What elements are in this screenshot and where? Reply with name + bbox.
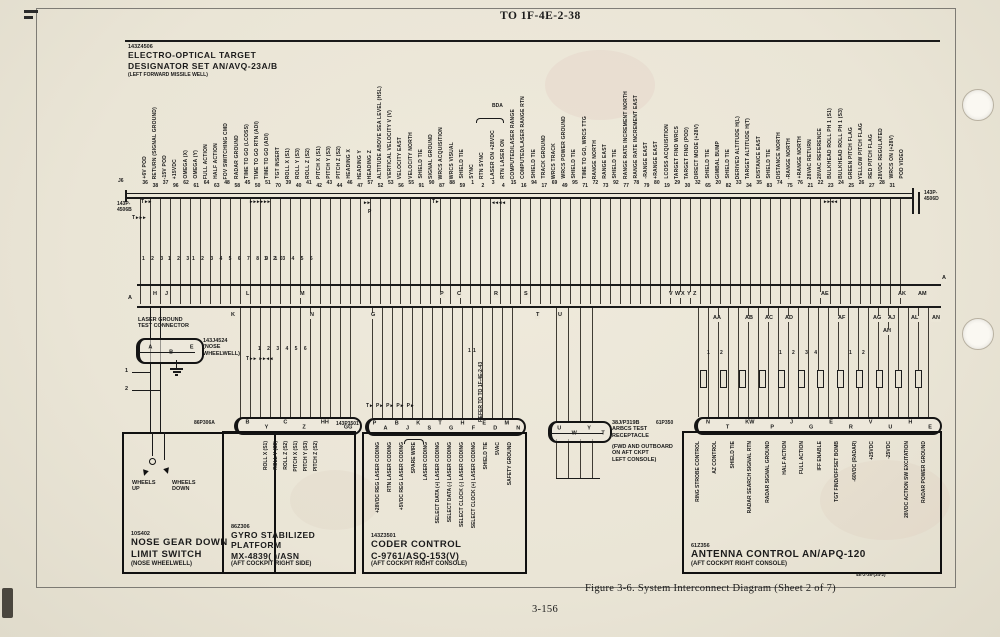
connector-right-end1: [912, 188, 914, 214]
gyro-connector-label: 86P306A: [194, 420, 215, 426]
laser-ground-loc2: WHEELWELL): [203, 351, 240, 357]
pin-signal-label: SYNC: [470, 164, 475, 179]
connector-pin: TARGET FIND (POD)30: [682, 56, 692, 190]
pin-signal-label: WRCS VISUAL: [450, 142, 455, 179]
antenna-signal: -25VDC: [887, 441, 893, 459]
pin-signal-label: TARGET FIND WRCS: [675, 126, 680, 179]
laser-ground-title-l2: TEST CONNECTOR: [138, 323, 189, 329]
pin-signal-label: -15V POD: [163, 155, 168, 179]
bus-letter-below: AC: [764, 316, 774, 322]
pin-number: 71: [582, 184, 588, 193]
gyro-signal: ROLL Z (S2): [284, 441, 290, 470]
antenna-connector-pin: V: [869, 421, 873, 427]
pin-number: 1: [471, 181, 474, 190]
wire-band-arbcs-loop: [556, 439, 604, 478]
pin-number: 90: [429, 181, 435, 190]
page-number: 3-156: [532, 604, 558, 615]
bus-line-upper: [137, 284, 941, 286]
coder-signal: SELECT CLOCK (+) LASER CODING: [472, 442, 478, 528]
bus-letter-below: T: [535, 313, 540, 319]
arbcs-loop-bottom: [556, 478, 600, 479]
pin-number: 25: [849, 184, 855, 193]
pin-number: 22: [818, 181, 824, 190]
connector-pin: RTN SYNC2: [478, 56, 488, 190]
diode-arrow-marks: ◂◂◂◂: [492, 200, 506, 206]
coder-signal: +28VDC REG LASER CODING: [376, 442, 382, 513]
connector-pin: RANGE RATE INCREMENT NORTH77: [621, 56, 631, 190]
inline-component: [915, 370, 922, 388]
pin-signal-label: 28VAC RETURN: [808, 139, 813, 179]
pin-signal-label: 28VAC REFERENCE: [818, 128, 823, 179]
jack-label: J6: [118, 178, 124, 184]
connector-pin: YELLOW PITCH FLAG26: [856, 56, 866, 190]
antenna-connector-label: 61P350: [656, 420, 673, 426]
wire-band-antenna: [698, 306, 934, 417]
diode-arrow-marks: T▸▸▸: [132, 215, 147, 221]
bus-label-a-left: A: [127, 296, 133, 302]
coder-connector-pin: M: [504, 422, 509, 428]
pin-number: 15: [511, 181, 517, 190]
pin-number: 91: [419, 184, 425, 193]
figure-caption: Figure 3-6. System Interconnect Diagram …: [585, 583, 836, 594]
connector-pin: HEADING X46: [345, 56, 355, 190]
pin-signal-label: COMPUTED/LASER RANGE: [511, 109, 516, 179]
pin-signal-label: WRCS ON (+28V): [890, 135, 895, 179]
pin-signal-label: RED PITCH FLAG: [869, 134, 874, 179]
connector-pin: BULKHEAD ROLL PH 1 (S1)23: [826, 56, 836, 190]
pin-signal-label: GIMBAL BUMP: [716, 141, 721, 179]
switch-contact-down: [163, 467, 171, 475]
coder-connector-pin: P: [373, 422, 377, 428]
pin-number: 43: [327, 181, 333, 190]
connector-pin: TRACK GROUND17: [539, 56, 549, 190]
pin-number: 38: [153, 184, 159, 193]
wire-number-1: 1: [125, 368, 128, 374]
pin-number: 65: [705, 184, 711, 193]
pin-signal-label: HEADING Y: [358, 150, 363, 180]
pin-signal-label: LASER ON +28VDC: [491, 130, 496, 179]
pin-number: 62: [183, 181, 189, 190]
pin-signal-label: PITCH Z (S2): [337, 146, 342, 179]
diode-arrow-marks: ▸▸▸▸▸▸: [250, 199, 271, 205]
connector-pin: SIGNAL GROUND90: [427, 56, 437, 190]
gyro-text-block: 86Z306 GYRO STABILIZED PLATFORM MX-4839(…: [231, 524, 354, 567]
pin-signal-label: HEADING X: [347, 149, 352, 179]
antenna-connector-pin: E: [829, 421, 833, 427]
pin-number: 16: [521, 184, 527, 193]
pin-signal-label: TARGET ALTITUDE H(T): [746, 118, 751, 179]
pin-number: 42: [316, 184, 322, 193]
arbcs-title-l2: RECEPTACLE: [612, 433, 673, 439]
wire-band-coder: [372, 306, 516, 418]
pin-number: 75: [787, 184, 793, 193]
connector-pin: +RANGE EAST80: [652, 56, 662, 190]
pin-number: 29: [675, 181, 681, 190]
bus-letter-below: U: [557, 313, 563, 319]
connector-pin: TIME TO GO RTN (ADI)50: [253, 56, 263, 190]
antenna-signal-labels: RING STROBE CONTROLAZ CONTROLSHIELD TIER…: [696, 441, 928, 537]
bus-letter-below: AB: [744, 316, 754, 322]
antenna-signal: HALF ACTION: [783, 441, 789, 475]
connector-pin: ROLL Y (S3)40: [294, 56, 304, 190]
pin-signal-label: POD VIDEO: [900, 149, 905, 179]
coder-signal: +5VDC REG LASER CODING: [400, 442, 406, 510]
pin-signal-label: WRCS TRACK: [552, 143, 557, 179]
connector-pin: RANGE RATE INCREMENT EAST78: [631, 56, 641, 190]
pin-number: 19: [664, 184, 670, 193]
connector-pin: SHIELD TIE65: [703, 56, 713, 190]
pin-signal-label: ROLL Y (S3): [296, 148, 301, 179]
wire-band-arbcs: [556, 306, 604, 422]
pin-number: 95: [572, 181, 578, 190]
bus-letter-below: N: [309, 313, 315, 319]
connector-pin: -RANGE EAST79: [641, 56, 651, 190]
pin-signal-label: PITCH Y (S3): [327, 146, 332, 179]
connector-pin: DIRECT MODE (+28V)32: [693, 56, 703, 190]
antenna-signal: RING STROBE CONTROL: [696, 441, 702, 502]
connector-pin: FULL ACTION64: [201, 56, 211, 190]
bus-letter-above: AK: [897, 292, 907, 298]
wire-number-2: 2: [125, 386, 128, 392]
connector-pin: SHIELD TIE59: [457, 56, 467, 190]
pin-signal-label: SHIELD TIE: [706, 149, 711, 179]
wire-bundle-numbers: 1 2 3 4 5 6: [264, 256, 315, 262]
bus-letter-below: AN: [931, 316, 941, 322]
pin-signal-label: HEADING Z: [368, 150, 373, 179]
pin-signal-label: RANGE RATE INCREMENT EAST: [634, 95, 639, 179]
pin-number: 52: [378, 184, 384, 193]
connector-pin: RANGE NORTH72: [590, 56, 600, 190]
wheels-up-label: WHEELS UP: [132, 480, 162, 493]
bus-letter-below: AF: [837, 316, 846, 322]
antenna-signal: RADAR SIGNAL GROUND: [766, 441, 772, 503]
bus-letter-below: G: [370, 313, 376, 319]
coder-signal: SPARE WIRE: [412, 442, 418, 473]
pin-signal-label: SHIELD TIE: [460, 149, 465, 179]
switch-pivot: [149, 458, 156, 465]
pin-signal-label: TIME TO GO (ADI): [265, 133, 270, 179]
coder-connector-pin: B: [395, 422, 399, 428]
pin-signal-label: DISTANCE EAST: [757, 136, 762, 179]
connector-pin: OMEGA (Y)61: [191, 56, 201, 190]
coder-signal: LASER CODING: [424, 442, 430, 480]
connector-pin: LASER ON +28VDC3: [488, 56, 498, 190]
arbcs-loc3: LEFT CONSOLE): [612, 457, 673, 463]
pin-signal-label: VERTICAL VELOCITY V (V): [388, 110, 393, 179]
arbcs-connector-shape: UWYT: [548, 421, 612, 443]
antenna-location: (AFT COCKPIT RIGHT CONSOLE): [691, 561, 866, 567]
connector-pin: SHIELD TIE91: [416, 56, 426, 190]
pin-signal-label: ALTITUDE ABOVE SEA LEVEL (HSL): [378, 86, 383, 179]
to-number-header: TO 1F-4E-2-38: [500, 10, 581, 22]
pin-number: 37: [163, 181, 169, 190]
pin-number: 76: [797, 181, 803, 190]
scan-mark-top-left2: [24, 16, 33, 19]
switch-wire-a: [152, 432, 153, 456]
diode-arrow-marks: P: [368, 209, 372, 215]
bda-bracket: [476, 118, 504, 123]
coder-control-box: +28VDC REG LASER CODINGRTN LASER CODING+…: [362, 432, 527, 574]
gyro-signal: PITCH X (S1): [294, 441, 300, 472]
pin-number: 27: [869, 184, 875, 193]
connector-pin: 28VAC RETURN21: [805, 56, 815, 190]
coder-model: C-9761/ASQ-153(V): [371, 551, 467, 561]
switch-contact-up: [141, 469, 149, 477]
pin-number: 87: [439, 184, 445, 193]
pin-number: 33: [736, 181, 742, 190]
pin-signal-label: RANGE EAST: [603, 144, 608, 179]
bus-letter-below: AG: [872, 316, 882, 322]
spare-wire-brace: [404, 439, 424, 444]
pin-number: 48: [224, 181, 230, 190]
pin-signal-label: RTN SYNC: [480, 152, 485, 179]
connector-pin: DERIVED ALTITUDE H(L)33: [734, 56, 744, 190]
pin-number: 94: [531, 181, 537, 190]
connector-pin: ROLL Z (S2)41: [304, 56, 314, 190]
connector-pin: TIME TO GO (ADI)51: [263, 56, 273, 190]
pin-signal-label: RETURN (SIGNAL GROUND): [153, 107, 158, 179]
binder-punch-hole-top: [962, 89, 994, 121]
pin-signal-label: TIME TO GO, WRCS TTG: [583, 116, 588, 179]
pin-signal-label: WRCS ACQUISITION: [439, 127, 444, 179]
pin-number: 88: [449, 181, 455, 190]
top-rule: [125, 40, 940, 42]
pin-number: 53: [388, 181, 394, 190]
connector-pin: RTN LASER ON4: [498, 56, 508, 190]
coder-connector-label: 143P3501: [336, 421, 359, 427]
gyro-connector-pin: C: [283, 421, 287, 427]
pin-number: 20: [715, 181, 721, 190]
pin-number: 3: [492, 181, 495, 190]
bus-letter-below: AL: [910, 316, 919, 322]
coder-text-block: 143Z3501 CODER CONTROL C-9761/ASQ-153(V)…: [371, 533, 467, 567]
antenna-signal: +25VDC: [870, 441, 876, 460]
connector-pin: SHIELD TIE95: [570, 56, 580, 190]
gyro-signal-labels: ROLL X (S1)ROLL Y (S3)ROLL Z (S2)PITCH X…: [264, 441, 320, 521]
laser-ground-connector-label: 143J4524 (NOSE WHEELWELL): [203, 338, 240, 357]
pin-signal-label: 28VDC REGULATED: [879, 128, 884, 179]
pin-signal-label: BULKHEAD ROLL PH 1 (S3): [839, 108, 844, 179]
arbcs-connector-pin: U: [557, 427, 561, 433]
antenna-signal: AZ CONTROL: [713, 441, 719, 474]
pin-number: 58: [234, 184, 240, 193]
pin-number: 28: [879, 181, 885, 190]
bus-letter-above: Z: [692, 292, 697, 298]
pin-number: 23: [828, 184, 834, 193]
pin-signal-label: +RANGE NORTH: [798, 136, 803, 179]
pin-number: 51: [265, 181, 271, 190]
pin-number: 44: [337, 184, 343, 193]
bus-line-lower: [137, 306, 941, 308]
bus-letter-above: M: [299, 292, 306, 298]
pin-signal-label: SIGNAL GROUND: [429, 134, 434, 179]
pin-number: 26: [859, 181, 865, 190]
laser-connector-pin: E: [190, 346, 194, 352]
pin-number: 57: [367, 181, 373, 190]
bus-label-a-right: A: [941, 276, 947, 282]
pin-number: 78: [634, 181, 640, 190]
connector-pin: +RANGE NORTH76: [795, 56, 805, 190]
bus-letter-above: X: [680, 292, 686, 298]
inline-component: [837, 370, 844, 388]
pin-signal-label: VELOCITY NORTH: [409, 132, 414, 179]
pin-number: 47: [357, 184, 363, 193]
diode-arrow-marks: T▸ P▸ P▸ P▸ P▸: [366, 403, 415, 409]
connector-pin: SYNC1: [468, 56, 478, 190]
connector-left-label: 143P- 4506B: [117, 201, 132, 213]
connector-pin: VELOCITY NORTH55: [406, 56, 416, 190]
pin-number: 96: [173, 184, 179, 193]
gyro-model: MX-4839( )/ASN: [231, 551, 354, 561]
inline-component: [720, 370, 727, 388]
inline-component: [778, 370, 785, 388]
connector-left-label-l2: 4506B: [117, 207, 132, 213]
coder-signal: RTN LASER CODING: [388, 442, 394, 492]
connector-pin: GIMBAL BUMP20: [713, 56, 723, 190]
pin-number: 2: [481, 184, 484, 193]
pin-signal-label: ROLL Z (S2): [306, 148, 311, 179]
inline-component: [700, 370, 707, 388]
bus-letter-above: AE: [820, 292, 830, 298]
arbcs-text-block: 38J/P319B ARBCS TEST RECEPTACLE (FWD AND…: [612, 420, 673, 463]
pin-number: 34: [746, 184, 752, 193]
pin-signal-label: TRACK GROUND: [542, 135, 547, 179]
antenna-control-box: RING STROBE CONTROLAZ CONTROLSHIELD TIER…: [682, 431, 942, 574]
bus-letter-below: AD: [784, 316, 794, 322]
bus-letter-above: P: [439, 292, 445, 298]
pin-number: 55: [408, 181, 414, 190]
connector-pin: RED PITCH FLAG27: [867, 56, 877, 190]
pin-signal-label: TIME TO GO (LCOSS): [245, 124, 250, 179]
pin-signal-label: LCOSS ACQUISITION: [665, 124, 670, 179]
connector-pin: ROLL X (S1)39: [283, 56, 293, 190]
switch-wire-b: [164, 432, 165, 460]
pin-number: 46: [347, 181, 353, 190]
pin-number: 21: [808, 184, 814, 193]
pin-signal-label: GREEN PITCH FLAG: [849, 127, 854, 179]
pin-number: 36: [142, 181, 148, 190]
connector-right-label-l2: 4506D: [924, 196, 939, 202]
connector-pin: HALF ACTION63: [212, 56, 222, 190]
pin-number: 31: [889, 184, 895, 193]
antenna-signal: FULL ACTION: [800, 441, 806, 474]
antenna-signal: TGT FIND/OFFSET BOMB: [835, 441, 841, 502]
antenna-signal: RADAR SEARCH SIGNAL RTN: [748, 441, 754, 513]
connector-pin: SHIELD TIE94: [529, 56, 539, 190]
coder-location: (AFT COCKPIT RIGHT CONSOLE): [371, 561, 467, 567]
wire-bundle-numbers: 1 2 3 4 5 6: [258, 346, 309, 352]
pin-number: 92: [613, 181, 619, 190]
pin-signal-label: DERIVED ALTITUDE H(L): [736, 116, 741, 179]
pin-number: 77: [623, 184, 629, 193]
pin-signal-label: +6V POD: [143, 156, 148, 179]
connector-pin: BULKHEAD ROLL PH 1 (S3)24: [836, 56, 846, 190]
pin-number: 83: [767, 184, 773, 193]
wire-label1-lead: [132, 372, 150, 373]
pin-signal-label: TGT INSERT: [276, 147, 281, 179]
coder-signal: SELECT CLOCK (-) LASER CODING: [460, 442, 466, 527]
connector-pin: OMEGA (X)62: [181, 56, 191, 190]
antenna-connector-pin: N: [706, 421, 710, 427]
inline-component: [817, 370, 824, 388]
pin-signal-label: BULKHEAD ROLL PH 1 (S1): [828, 108, 833, 179]
bus-letter-below: K: [230, 313, 236, 319]
connector-pin: PITCH X (S1)42: [314, 56, 324, 190]
connector-pin: HEADING Y47: [355, 56, 365, 190]
pin-signal-label: OMEGA (X): [184, 150, 189, 179]
wire-bundle-numbers: 1 2 3: [168, 256, 192, 262]
pin-signal-label: RANGE NORTH: [593, 140, 598, 179]
diode-arrow-marks: T▸▸: [141, 199, 152, 205]
connector-pin: 28VAC REFERENCE22: [815, 56, 825, 190]
laser-ground-title: LASER GROUND TEST CONNECTOR: [138, 317, 189, 330]
wire-bundle-numbers: 1 2 3 4: [779, 350, 820, 356]
connector-pin: WRCS POWER GROUND49: [560, 56, 570, 190]
pin-number: 49: [562, 184, 568, 193]
wheels-down-label: WHEELS DOWN: [172, 480, 202, 493]
bus-letter-above: AM: [917, 292, 928, 298]
pin-signal-label: COMPUTED/LASER RANGE RTN: [521, 96, 526, 179]
connector-pin: COMPUTED/LASER RANGE RTN16: [519, 56, 529, 190]
antenna-signal: 28VDC ACTION SW EXCITATION: [905, 441, 911, 518]
pin-signal-label: +15VDC: [173, 159, 178, 179]
connector-right-label: 143P- 4506D: [924, 190, 939, 202]
antenna-signal: -60VDC (RADAR): [853, 441, 859, 482]
coder-connector-pin: K: [416, 422, 420, 428]
pin-signal-label: WRCS POWER GROUND: [562, 116, 567, 179]
diode-arrow-marks: ▸▸: [364, 200, 371, 206]
connector-pin: SHIELD TIE82: [723, 56, 733, 190]
ground-stem: [176, 360, 177, 368]
pin-number: 69: [552, 181, 558, 190]
pin-signal-label: TIME TO GO RTN (ADI): [255, 121, 260, 179]
pin-signal-label: +RANGE EAST: [654, 141, 659, 179]
nose-gear-title-l2: LIMIT SWITCH: [131, 549, 228, 561]
bus-letter-above: S: [523, 292, 529, 298]
connector-pin: GREEN PITCH FLAG25: [846, 56, 856, 190]
connector-pin: +15VDC96: [171, 56, 181, 190]
laser-connector-pin: A: [148, 346, 152, 352]
connector-pin: WRCS ON (+28V)31: [887, 56, 897, 190]
pin-signal-label: DISTANCE NORTH: [777, 132, 782, 179]
wire-band-main: [140, 199, 908, 304]
connector-pin: TIME TO GO, WRCS TTG71: [580, 56, 590, 190]
eo-connector-pin-strip: +6V POD36RETURN (SIGNAL GROUND)38-15V PO…: [140, 56, 908, 190]
coder-signal: SHIELD TIE: [484, 442, 490, 470]
pin-signal-label: SHIELD TIE: [419, 149, 424, 179]
coder-signal: 5VAC: [496, 442, 502, 455]
connector-pin: WRCS TRACK69: [549, 56, 559, 190]
pin-signal-label: VELOCITY EAST: [398, 137, 403, 179]
gyro-signal: ROLL X (S1): [264, 441, 270, 470]
antenna-signal: SHIELD TIE: [731, 441, 737, 469]
pin-signal-label: OMEGA (Y): [194, 150, 199, 179]
connector-pin: COMPUTED/LASER RANGE15: [508, 56, 518, 190]
antenna-text-block: 61Z356 ANTENNA CONTROL AN/APQ-120 (AFT C…: [691, 543, 866, 568]
wire-label2-lead: [132, 390, 160, 391]
bus-letter-above: R: [493, 292, 499, 298]
wire-bundle-numbers: 1 2 3: [142, 256, 166, 262]
gyro-platform-box: ROLL X (S1)ROLL Y (S3)ROLL Z (S2)PITCH X…: [222, 431, 356, 574]
arbcs-connector-pin: Y: [587, 427, 591, 433]
pin-signal-label: SHIELD TIE: [613, 149, 618, 179]
pin-number: 45: [245, 181, 251, 190]
bus-letter-above: L: [245, 292, 250, 298]
coder-signal: SELECT DATA (+) LASER CODING: [436, 442, 442, 523]
inline-component: [759, 370, 766, 388]
connector-right-end2: [918, 192, 920, 214]
antenna-connector-pin: KW: [745, 421, 754, 427]
